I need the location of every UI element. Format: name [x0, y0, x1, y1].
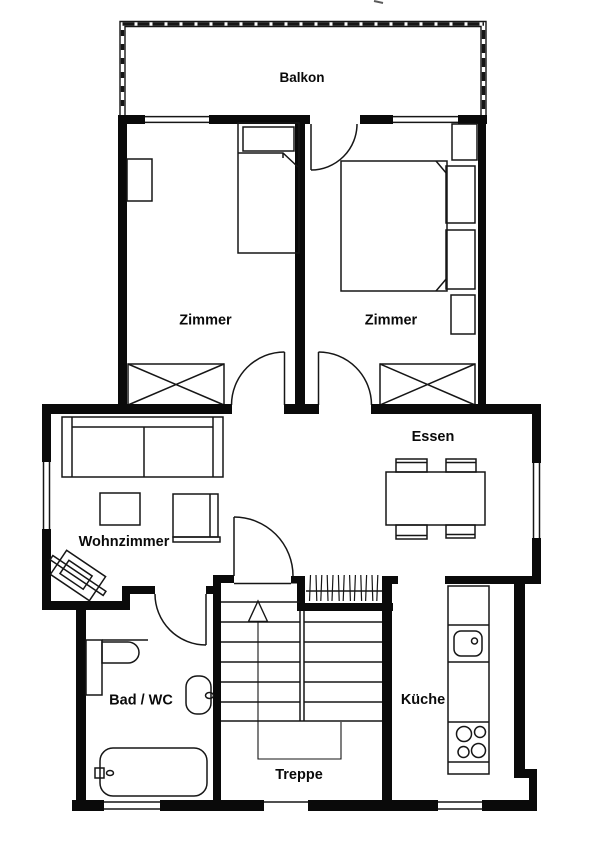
svg-text:Bad / WC: Bad / WC — [109, 693, 173, 709]
svg-text:Balkon: Balkon — [279, 70, 324, 85]
svg-text:Treppe: Treppe — [275, 767, 323, 783]
svg-text:Zimmer: Zimmer — [179, 313, 232, 329]
svg-text:Zimmer: Zimmer — [365, 313, 418, 329]
svg-text:Essen: Essen — [412, 429, 455, 445]
svg-text:Küche: Küche — [401, 692, 445, 708]
svg-text:Wohnzimmer: Wohnzimmer — [79, 534, 170, 550]
